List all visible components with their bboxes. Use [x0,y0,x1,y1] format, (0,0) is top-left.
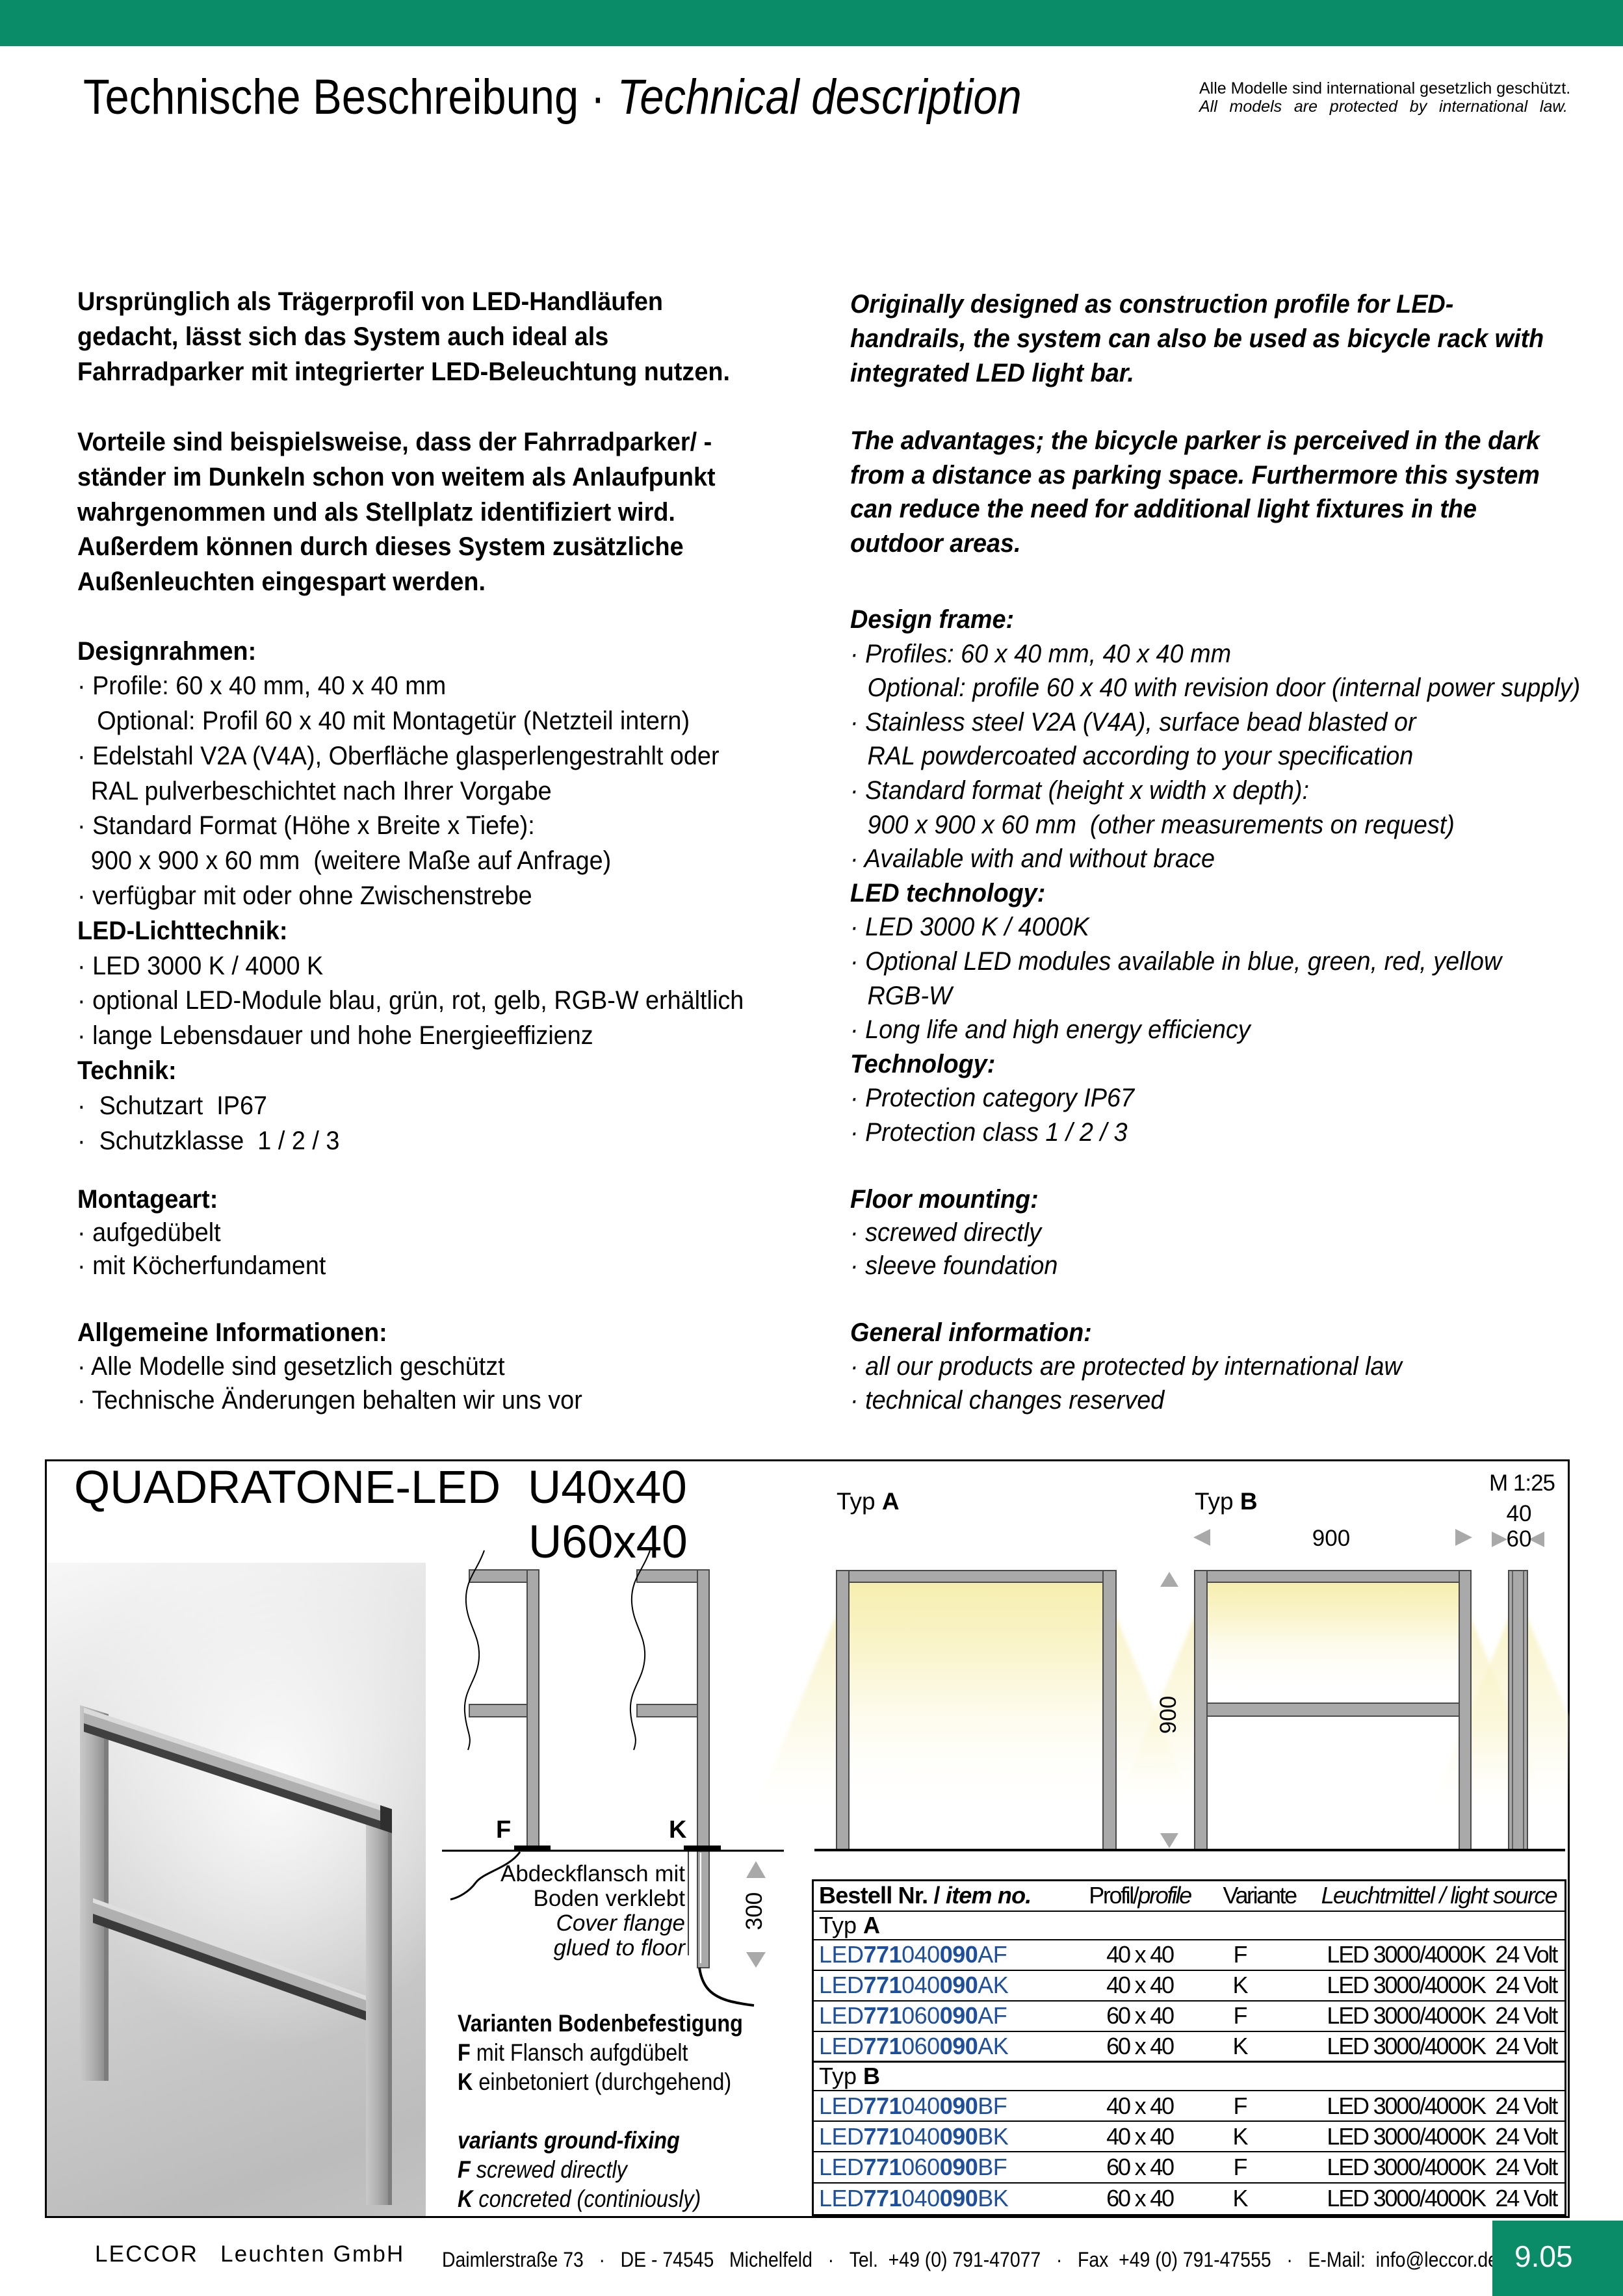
svg-text:60: 60 [1507,1526,1532,1552]
svg-text:300: 300 [742,1892,767,1930]
svg-text:900: 900 [1312,1526,1350,1551]
svg-text:900: 900 [1156,1696,1181,1734]
